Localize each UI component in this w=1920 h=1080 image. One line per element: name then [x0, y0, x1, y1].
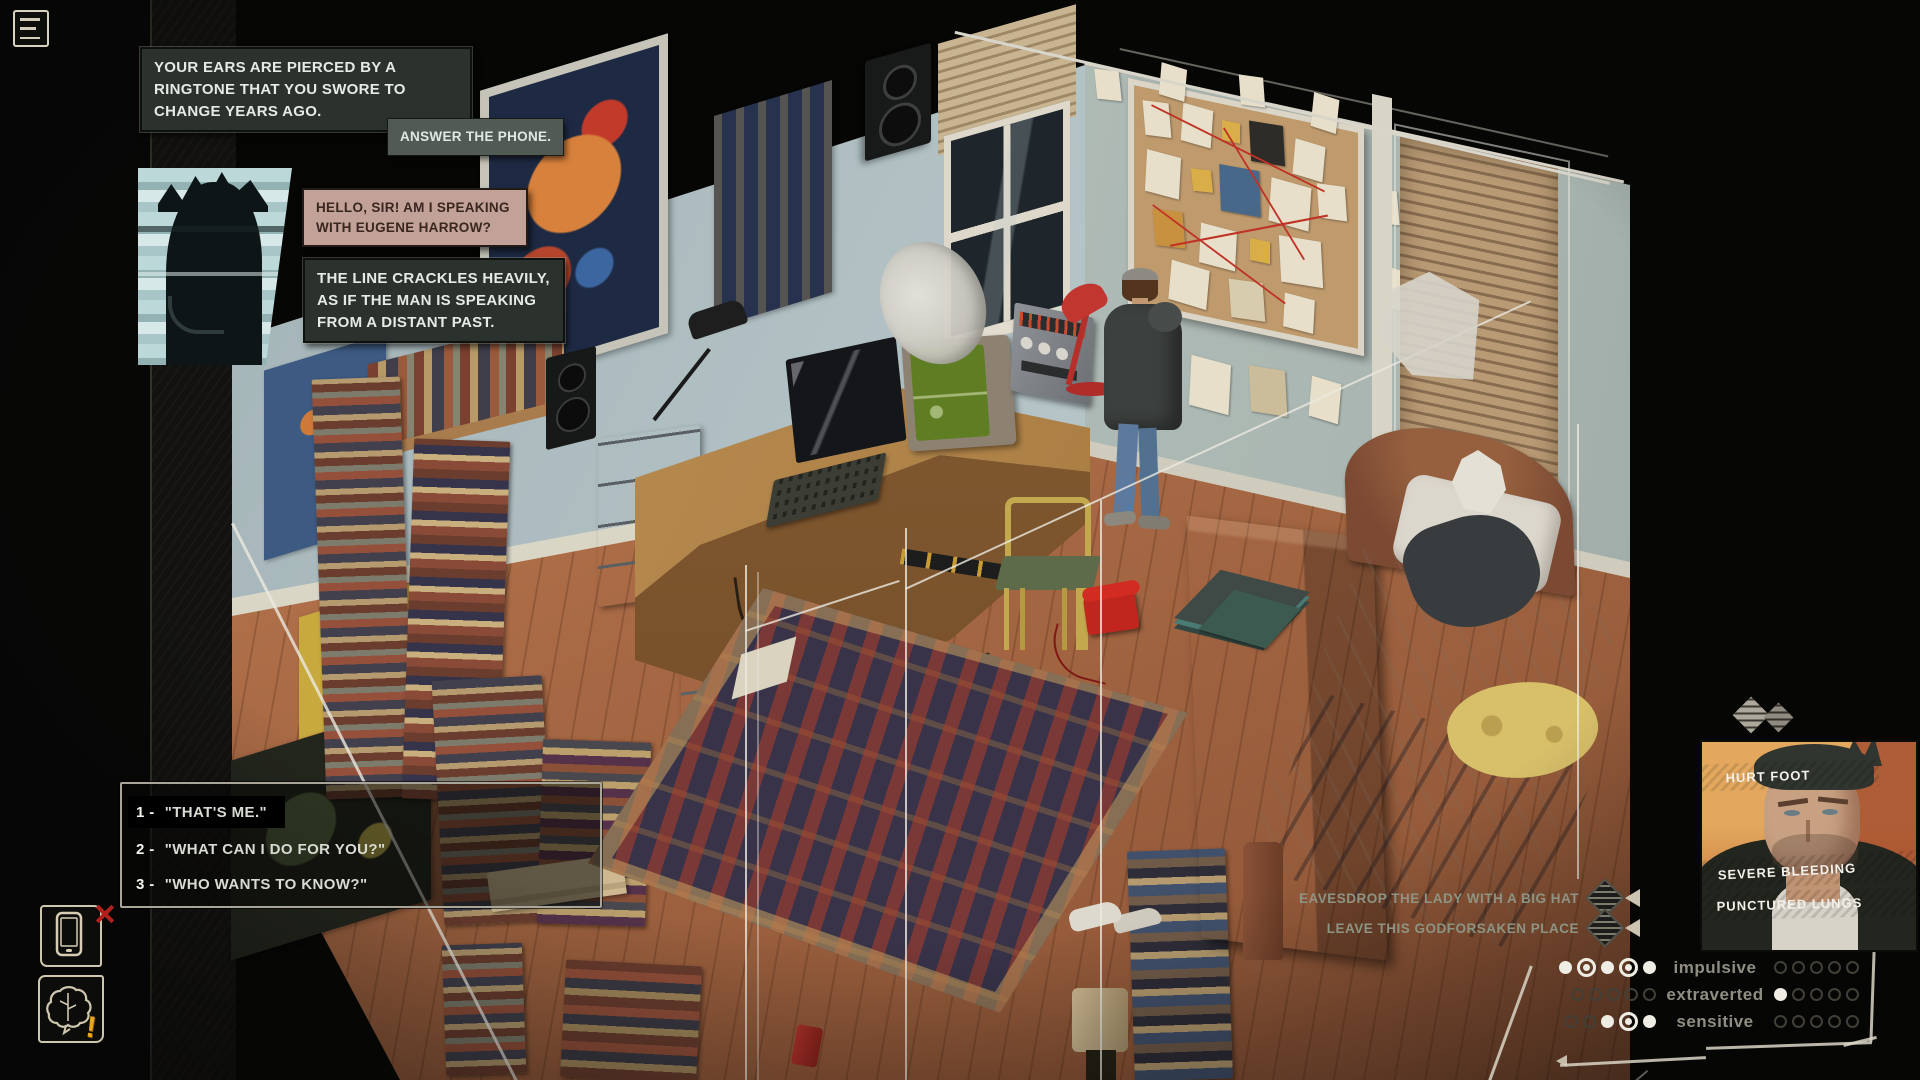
trait-dots-right — [1774, 1015, 1874, 1028]
trait-dot-empty — [1774, 961, 1787, 974]
cutaway-line — [757, 572, 759, 1080]
cutaway-line — [1577, 424, 1579, 879]
wall-note — [1249, 365, 1288, 417]
trait-label: impulsive — [1656, 958, 1774, 978]
trait-dot-filled — [1601, 1015, 1614, 1028]
trait-dot-filled — [1559, 961, 1572, 974]
card-diamond-icon — [1764, 703, 1794, 733]
trait-dot-empty — [1792, 1015, 1805, 1028]
status-label: PUNCTURED LUNGS — [1716, 895, 1862, 914]
traits-panel: impulsiveextravertedsensitive — [1556, 954, 1876, 1035]
dialogue-options-panel: 1 - "THAT'S ME." 2 - "WHAT CAN I DO FOR … — [120, 782, 602, 908]
book-stack — [560, 960, 702, 1080]
trait-dot-empty — [1607, 988, 1620, 1001]
game-screen: YOUR EARS ARE PIERCED BY A RINGTONE THAT… — [0, 0, 1920, 1080]
trait-dot-empty — [1792, 961, 1805, 974]
trait-dot-empty — [1846, 988, 1859, 1001]
trait-dot-empty — [1792, 988, 1805, 1001]
cutaway-line — [745, 565, 747, 1080]
cutaway-line — [905, 528, 907, 1080]
trait-dot-empty — [1571, 988, 1584, 1001]
trait-label: extraverted — [1656, 985, 1774, 1005]
panel-stroke-arrowhead — [1556, 1055, 1567, 1067]
left-hatch-strip — [150, 0, 236, 1080]
glitch-bar — [138, 272, 292, 276]
speaker-shelf — [546, 346, 596, 450]
trait-dot-filled — [1643, 1015, 1656, 1028]
dialog-player-choice: ANSWER THE PHONE. — [388, 119, 563, 155]
action-label: EAVESDROP THE LADY WITH A BIG HAT — [1299, 891, 1579, 906]
trait-dots-left — [1556, 1012, 1656, 1031]
action-pointer-icon — [1625, 919, 1640, 937]
trait-dot-empty — [1810, 1015, 1823, 1028]
trait-dot-filled — [1643, 961, 1656, 974]
trait-dot-empty — [1589, 988, 1602, 1001]
speaker-wall — [865, 43, 931, 162]
chair-seat — [995, 556, 1101, 590]
trait-dot-empty — [1643, 988, 1656, 1001]
trait-dot-empty — [1810, 988, 1823, 1001]
action-card-icon — [1585, 908, 1625, 948]
trait-label: sensitive — [1656, 1012, 1774, 1032]
trait-dot-empty — [1846, 961, 1859, 974]
trait-dot-ring — [1619, 1012, 1638, 1031]
trait-dot-empty — [1583, 1015, 1596, 1028]
hamburger-icon — [20, 27, 36, 30]
glitch-bar — [138, 226, 292, 232]
dialog-npc-line: HELLO, SIR! AM I SPEAKING WITH EUGENE HA… — [302, 188, 528, 247]
portrait-eye — [1822, 809, 1838, 815]
option-number: 3 - — [136, 876, 155, 893]
status-label: HURT FOOT — [1725, 767, 1810, 785]
brain-tool-button[interactable]: ! — [38, 975, 104, 1043]
trait-dot-empty — [1625, 988, 1638, 1001]
trait-dot-empty — [1565, 1015, 1578, 1028]
hamburger-icon — [20, 18, 40, 21]
wall-note — [1094, 69, 1122, 101]
phone-icon — [42, 907, 96, 961]
caller-hair-spikes — [158, 172, 268, 212]
dialogue-option-3[interactable]: 3 - "WHO WANTS TO KNOW?" — [136, 868, 367, 900]
trait-dot-ring — [1619, 958, 1638, 977]
option-number: 1 - — [136, 804, 155, 821]
option-text: "WHO WANTS TO KNOW?" — [165, 876, 368, 893]
portrait-eye — [1784, 810, 1800, 816]
trait-dot-empty — [1828, 988, 1841, 1001]
option-number: 2 - — [136, 841, 155, 858]
trait-dot-ring — [1577, 958, 1596, 977]
player-card-diamonds[interactable] — [1736, 698, 1806, 744]
phone-tool-button[interactable] — [40, 905, 102, 967]
poster-dark-blue — [714, 80, 832, 328]
trait-row-sensitive: sensitive — [1556, 1008, 1876, 1035]
dialogue-option-1[interactable]: 1 - "THAT'S ME." — [128, 796, 285, 828]
card-diamond-icon — [1733, 697, 1770, 734]
trait-dot-empty — [1810, 961, 1823, 974]
dialogue-option-2[interactable]: 2 - "WHAT CAN I DO FOR YOU?" — [136, 833, 385, 865]
trait-dot-empty — [1774, 1015, 1787, 1028]
action-leave[interactable]: LEAVE THIS GODFORSAKEN PLACE — [1100, 914, 1640, 942]
option-text: "WHAT CAN I DO FOR YOU?" — [165, 841, 386, 858]
npc-portrait — [138, 168, 292, 365]
trait-dot-filled — [1601, 961, 1614, 974]
unavailable-x-icon — [94, 903, 116, 925]
action-label: LEAVE THIS GODFORSAKEN PLACE — [1327, 921, 1579, 936]
cutaway-line — [1100, 500, 1102, 1080]
action-eavesdrop[interactable]: EAVESDROP THE LADY WITH A BIG HAT — [1100, 884, 1640, 912]
option-text: "THAT'S ME." — [165, 804, 267, 821]
trait-row-extraverted: extraverted — [1556, 981, 1876, 1008]
trait-dot-empty — [1828, 961, 1841, 974]
trait-dot-empty — [1828, 1015, 1841, 1028]
character[interactable] — [1096, 268, 1196, 524]
trait-dot-empty — [1846, 1015, 1859, 1028]
chair — [1005, 497, 1091, 561]
trait-dots-left — [1556, 958, 1656, 977]
book-stack — [312, 377, 415, 800]
trait-dots-right — [1774, 988, 1874, 1001]
trait-dots-right — [1774, 961, 1874, 974]
menu-button[interactable] — [13, 10, 49, 47]
trait-dot-filled — [1774, 988, 1787, 1001]
trait-dots-left — [1556, 988, 1656, 1001]
trait-row-impulsive: impulsive — [1556, 954, 1876, 981]
dialog-narration-2: THE LINE CRACKLES HEAVILY, AS IF THE MAN… — [303, 258, 565, 343]
action-pointer-icon — [1625, 889, 1640, 907]
hamburger-icon — [20, 37, 40, 40]
status-label: SEVERE BLEEDING — [1717, 860, 1856, 882]
